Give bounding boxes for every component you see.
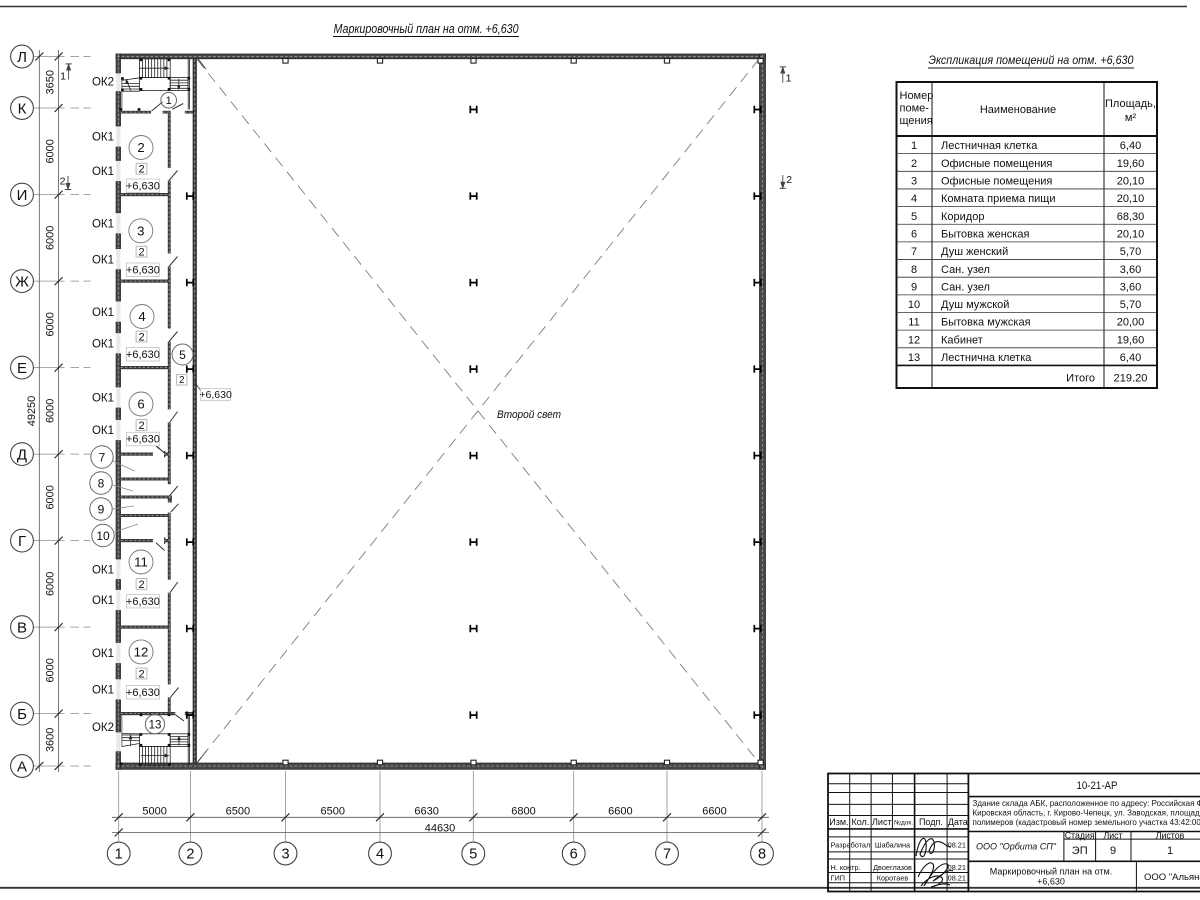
svg-text:Е: Е <box>17 360 27 377</box>
svg-text:Шабалина: Шабалина <box>875 841 911 850</box>
svg-text:6500: 6500 <box>226 806 250 818</box>
svg-text:ОК2: ОК2 <box>92 77 114 89</box>
svg-text:ОК1: ОК1 <box>92 595 114 607</box>
svg-text:Разработал: Разработал <box>831 841 871 850</box>
svg-text:4: 4 <box>376 847 384 863</box>
svg-text:9: 9 <box>98 502 105 516</box>
svg-text:6,40: 6,40 <box>1120 140 1141 152</box>
svg-text:6000: 6000 <box>45 226 57 250</box>
svg-text:К: К <box>18 100 27 117</box>
svg-text:Д: Д <box>17 447 27 464</box>
svg-text:ООО "Орбита СП": ООО "Орбита СП" <box>976 842 1057 852</box>
svg-text:219.20: 219.20 <box>1114 373 1148 385</box>
svg-text:19,60: 19,60 <box>1117 158 1145 170</box>
svg-text:5,70: 5,70 <box>1120 299 1141 311</box>
svg-text:ОК1: ОК1 <box>92 166 114 178</box>
svg-text:А: А <box>17 758 27 775</box>
svg-text:+6,630: +6,630 <box>126 264 160 276</box>
svg-text:Офисные помещения: Офисные помещения <box>941 176 1052 188</box>
svg-text:20,10: 20,10 <box>1117 228 1145 240</box>
svg-text:3: 3 <box>281 847 289 863</box>
svg-text:6800: 6800 <box>511 806 535 818</box>
svg-text:ОК1: ОК1 <box>92 425 114 437</box>
svg-text:2: 2 <box>137 140 144 155</box>
svg-text:12: 12 <box>134 645 149 660</box>
svg-text:1: 1 <box>1167 845 1173 857</box>
svg-text:2: 2 <box>138 579 144 591</box>
svg-text:08.21: 08.21 <box>948 841 966 850</box>
svg-text:20,10: 20,10 <box>1117 193 1145 205</box>
svg-text:10: 10 <box>908 299 920 311</box>
svg-text:6000: 6000 <box>45 485 57 509</box>
svg-text:+6,630: +6,630 <box>199 389 232 401</box>
svg-text:+6,630: +6,630 <box>126 180 160 192</box>
svg-text:Бытовка женская: Бытовка женская <box>941 228 1029 240</box>
svg-text:И: И <box>17 187 28 204</box>
svg-text:6000: 6000 <box>45 139 57 163</box>
svg-text:2: 2 <box>60 176 66 188</box>
svg-text:8: 8 <box>911 264 917 276</box>
svg-text:3,60: 3,60 <box>1120 264 1141 276</box>
svg-text:2: 2 <box>138 420 144 432</box>
svg-text:Кол.: Кол. <box>851 817 869 827</box>
svg-text:Лестнична клетка: Лестнична клетка <box>941 352 1032 364</box>
svg-text:Бытовка мужская: Бытовка мужская <box>941 317 1031 329</box>
svg-text:Подп.: Подп. <box>919 817 943 827</box>
svg-text:2: 2 <box>138 164 144 176</box>
svg-text:13: 13 <box>908 352 920 364</box>
svg-text:7: 7 <box>99 450 106 464</box>
svg-text:8: 8 <box>98 476 105 490</box>
svg-text:12: 12 <box>908 334 920 346</box>
svg-text:Площадь,: Площадь, <box>1105 98 1156 110</box>
svg-text:1: 1 <box>60 71 66 83</box>
svg-text:Дата: Дата <box>948 817 968 827</box>
svg-text:ОК1: ОК1 <box>92 685 114 697</box>
svg-text:Душ мужской: Душ мужской <box>941 299 1009 311</box>
svg-text:ОК1: ОК1 <box>92 648 114 660</box>
svg-text:ОК2: ОК2 <box>92 722 114 734</box>
svg-text:Листов: Листов <box>1156 830 1185 840</box>
svg-text:7: 7 <box>663 847 671 863</box>
svg-text:2: 2 <box>138 331 144 343</box>
svg-text:Б: Б <box>17 706 27 723</box>
svg-text:6000: 6000 <box>45 312 57 336</box>
svg-text:3: 3 <box>911 176 917 188</box>
svg-text:Кировская область, г. Кирово-Ч: Кировская область, г. Кирово-Чепецк, ул.… <box>973 809 1200 818</box>
svg-text:+6,630: +6,630 <box>126 349 160 361</box>
svg-text:44630: 44630 <box>425 822 456 834</box>
svg-text:ОК1: ОК1 <box>92 307 114 319</box>
svg-text:6000: 6000 <box>45 572 57 596</box>
svg-text:Лист: Лист <box>1103 830 1122 840</box>
svg-text:9: 9 <box>1110 845 1116 857</box>
svg-text:Лист: Лист <box>872 817 892 827</box>
svg-text:11: 11 <box>908 317 919 329</box>
svg-text:ОК1: ОК1 <box>92 254 114 266</box>
svg-text:6000: 6000 <box>45 658 57 682</box>
svg-text:Кабинет: Кабинет <box>941 334 983 346</box>
svg-text:Душ женский: Душ женский <box>941 246 1008 258</box>
svg-text:Сан. узел: Сан. узел <box>941 281 990 293</box>
svg-text:3: 3 <box>137 224 144 239</box>
svg-text:6630: 6630 <box>414 806 438 818</box>
svg-text:Изм.: Изм. <box>829 817 848 827</box>
svg-text:Второй свет: Второй свет <box>497 409 561 421</box>
svg-text:Коротаев: Коротаев <box>877 873 909 882</box>
svg-text:Двоеглазов: Двоеглазов <box>873 863 912 872</box>
svg-text:20,00: 20,00 <box>1117 317 1145 329</box>
svg-text:1: 1 <box>115 847 123 863</box>
svg-text:Маркировочный план на отм.: Маркировочный план на отм. <box>990 867 1112 877</box>
svg-text:щения: щения <box>900 115 933 127</box>
svg-text:6,40: 6,40 <box>1120 352 1141 364</box>
svg-text:Коридор: Коридор <box>941 211 984 223</box>
svg-text:Лестничная клетка: Лестничная клетка <box>941 140 1038 152</box>
svg-text:Номер: Номер <box>900 90 934 102</box>
svg-text:В: В <box>17 620 27 637</box>
svg-text:Итого: Итого <box>1066 373 1095 385</box>
svg-text:2: 2 <box>138 247 144 259</box>
svg-text:5: 5 <box>911 211 917 223</box>
svg-text:Здание склада АБК, расположенн: Здание склада АБК, расположенное по адре… <box>973 799 1200 808</box>
svg-text:ОК1: ОК1 <box>92 339 114 351</box>
svg-text:49250: 49250 <box>26 396 38 427</box>
svg-text:68,30: 68,30 <box>1117 211 1145 223</box>
svg-text:6: 6 <box>137 397 144 412</box>
svg-text:4: 4 <box>911 193 917 205</box>
svg-text:ОК1: ОК1 <box>92 393 114 405</box>
svg-text:4: 4 <box>138 309 145 324</box>
svg-text:ООО "Альянс: ООО "Альянс <box>1144 872 1200 883</box>
svg-text:полимеров (кадастровый номер з: полимеров (кадастровый номер земельного … <box>973 818 1200 827</box>
svg-text:Офисные помещения: Офисные помещения <box>941 158 1052 170</box>
svg-text:3600: 3600 <box>45 728 57 752</box>
svg-text:Маркировочный план на отм. +6,: Маркировочный план на отм. +6,630 <box>334 21 520 36</box>
svg-text:ЭП: ЭП <box>1072 845 1088 857</box>
svg-text:5: 5 <box>179 348 186 362</box>
svg-text:3650: 3650 <box>45 70 57 94</box>
svg-text:+6,630: +6,630 <box>1037 877 1065 887</box>
svg-text:6000: 6000 <box>45 399 57 423</box>
svg-text:6500: 6500 <box>321 806 345 818</box>
svg-text:5: 5 <box>469 847 477 863</box>
svg-text:2: 2 <box>786 174 792 186</box>
svg-text:ОК1: ОК1 <box>92 219 114 231</box>
svg-text:3,60: 3,60 <box>1120 281 1141 293</box>
svg-text:10: 10 <box>96 529 110 543</box>
svg-text:2: 2 <box>179 375 185 386</box>
svg-text:2: 2 <box>186 847 194 863</box>
svg-text:13: 13 <box>149 719 162 731</box>
svg-text:6: 6 <box>911 228 917 240</box>
svg-text:10-21-АР: 10-21-АР <box>1077 780 1118 792</box>
svg-text:+6,630: +6,630 <box>126 434 160 446</box>
svg-text:08.21: 08.21 <box>948 873 966 882</box>
svg-text:Г: Г <box>18 533 26 550</box>
svg-text:Комната приема пищи: Комната приема пищи <box>941 193 1056 205</box>
svg-text:Сан. узел: Сан. узел <box>941 264 990 276</box>
svg-text:9: 9 <box>911 281 917 293</box>
svg-text:11: 11 <box>134 555 148 570</box>
svg-text:+6,630: +6,630 <box>126 687 160 699</box>
svg-text:8: 8 <box>758 847 766 863</box>
svg-text:7: 7 <box>911 246 917 258</box>
svg-text:ОК1: ОК1 <box>92 132 114 144</box>
svg-text:1: 1 <box>786 73 792 85</box>
svg-text:1: 1 <box>911 140 917 152</box>
svg-text:ОК1: ОК1 <box>92 565 114 577</box>
svg-text:19,60: 19,60 <box>1117 334 1145 346</box>
svg-text:№док.: №док. <box>894 820 913 827</box>
svg-text:ГИП: ГИП <box>831 873 845 882</box>
svg-text:2: 2 <box>138 668 144 680</box>
svg-text:+6,630: +6,630 <box>126 596 160 608</box>
svg-text:Н. контр.: Н. контр. <box>831 863 861 872</box>
svg-text:20,10: 20,10 <box>1117 176 1145 188</box>
svg-text:2: 2 <box>911 158 917 170</box>
svg-text:м²: м² <box>1125 112 1137 124</box>
svg-text:5,70: 5,70 <box>1120 246 1141 258</box>
svg-text:Ж: Ж <box>15 274 29 291</box>
svg-text:Л: Л <box>17 49 27 66</box>
svg-text:Наименование: Наименование <box>980 104 1056 116</box>
svg-text:поме-: поме- <box>900 103 930 115</box>
svg-text:Стадия: Стадия <box>1065 830 1095 840</box>
svg-text:6600: 6600 <box>702 806 726 818</box>
svg-text:1: 1 <box>166 95 172 107</box>
svg-text:5000: 5000 <box>142 806 166 818</box>
svg-text:Экспликация помещений на отм.: Экспликация помещений на отм. +6,630 <box>929 54 1135 67</box>
svg-text:6: 6 <box>570 847 578 863</box>
svg-text:6600: 6600 <box>608 806 632 818</box>
